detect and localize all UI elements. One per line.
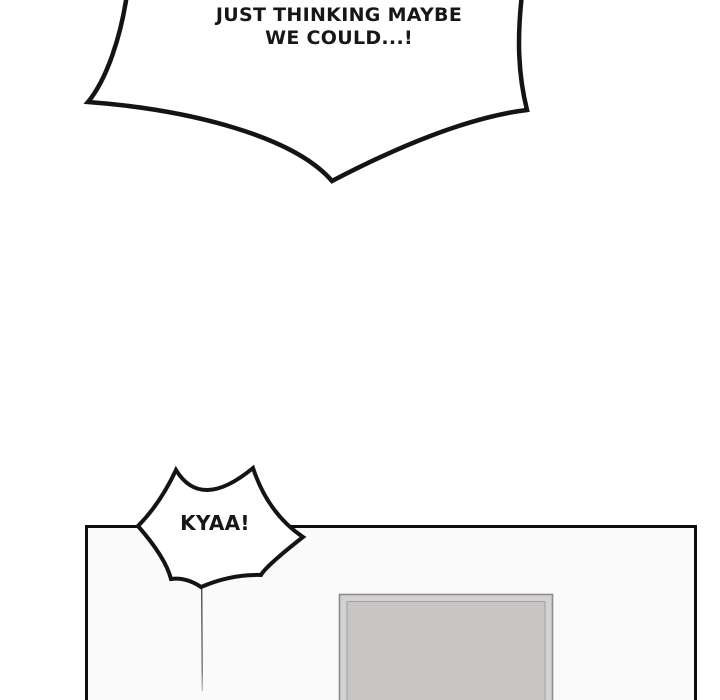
burst-tail-line bbox=[202, 586, 203, 691]
shout-bubble-line2: WE COULD...! bbox=[179, 27, 499, 50]
comic-artwork bbox=[0, 0, 720, 700]
picture-frame bbox=[340, 595, 553, 700]
burst-bubble-text: KYAA! bbox=[145, 511, 285, 535]
shout-bubble-text: JUST THINKING MAYBE WE COULD...! bbox=[179, 4, 499, 50]
comic-page: JUST THINKING MAYBE WE COULD...! KYAA! bbox=[0, 0, 720, 700]
picture-frame-inner bbox=[347, 602, 545, 700]
shout-bubble-line1: JUST THINKING MAYBE bbox=[179, 4, 499, 27]
